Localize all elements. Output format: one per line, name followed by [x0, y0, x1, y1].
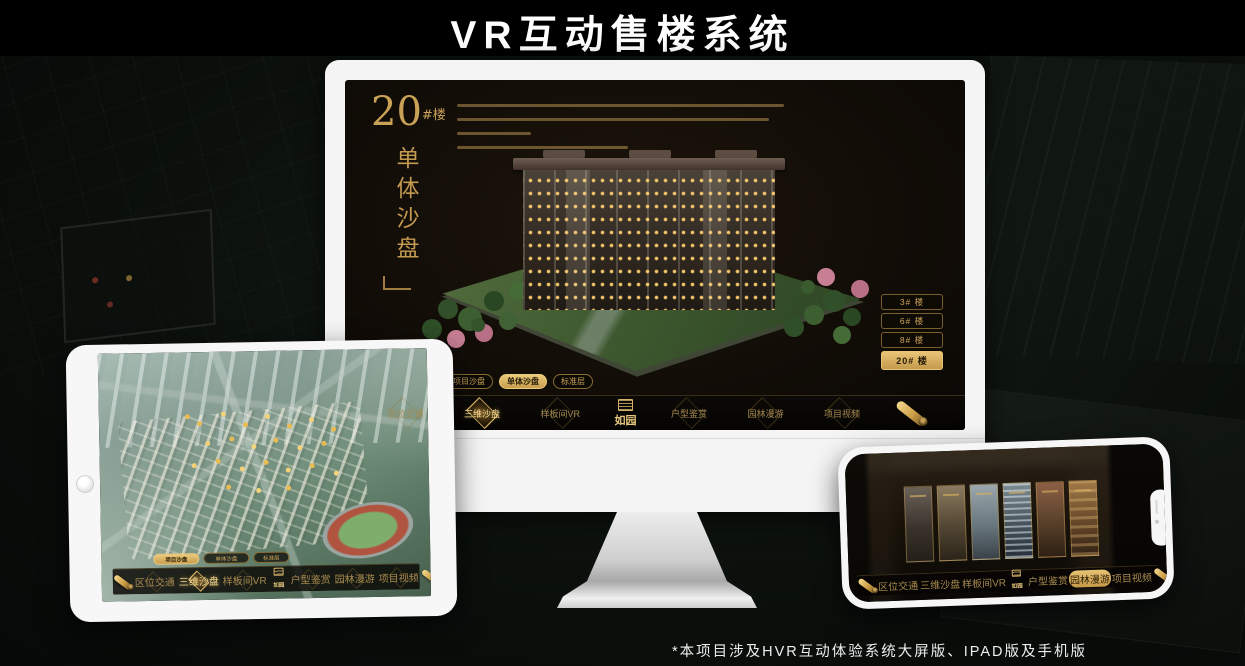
- floor-button-8[interactable]: 8# 楼: [881, 332, 943, 348]
- scroll-handle-icon[interactable]: [895, 399, 927, 427]
- roof-gable: [715, 150, 757, 158]
- building-number-unit: #楼: [422, 104, 446, 123]
- building-3d-render[interactable]: [405, 130, 885, 392]
- monitor-nav-item-project-video[interactable]: 项目视频: [818, 405, 866, 422]
- gallery-panel[interactable]: [1003, 482, 1034, 559]
- residential-building: [523, 158, 775, 310]
- phone-nav-item-floorplan-gallery[interactable]: 户型鉴赏: [1027, 570, 1070, 588]
- subtab-single-sandtable[interactable]: 单体沙盘: [499, 374, 547, 389]
- phone-screen: 区位交通 三维沙盘 样板间VR 如园 户型鉴赏 园林漫游 项目视频: [845, 443, 1168, 602]
- hanging-panel-gallery: [904, 480, 1100, 563]
- tablet-nav-item-3d-sandtable[interactable]: 三维沙盘: [177, 572, 221, 590]
- tablet-nav-item-model-room-vr[interactable]: 样板间VR: [221, 571, 269, 589]
- tablet-nav-item-garden-roam[interactable]: 园林漫游: [332, 569, 376, 587]
- brand-logo-text: 如园: [273, 579, 284, 587]
- background-plaque: [60, 209, 215, 344]
- phone-brand-logo: 如园: [1007, 569, 1028, 593]
- phone-nav-item-location-traffic[interactable]: 区位交通: [877, 576, 920, 594]
- scroll-handle-icon[interactable]: [857, 578, 877, 595]
- gallery-panel[interactable]: [970, 483, 1001, 560]
- scroll-handle-icon[interactable]: [113, 574, 133, 591]
- tablet-device: 项目沙盘 单体沙盘 标准层 区位交通 三维沙盘 样板间VR 如园 户型鉴赏 园林…: [66, 339, 458, 623]
- brand-seal-icon: [618, 399, 633, 411]
- speaker-slit-icon: [1155, 500, 1157, 514]
- brand-logo-text: 如园: [614, 412, 636, 428]
- trees-foliage: [801, 280, 815, 294]
- tablet-brand-logo: 如园: [268, 567, 288, 591]
- page-title: VR互动售楼系统: [0, 4, 1245, 60]
- tablet-nav-item-floorplan-gallery[interactable]: 户型鉴赏: [288, 570, 332, 588]
- monitor-nav-item-floorplan-gallery[interactable]: 户型鉴赏: [665, 405, 713, 422]
- building-facade-lit-windows: [523, 170, 775, 310]
- phone-device: 区位交通 三维沙盘 样板间VR 如园 户型鉴赏 园林漫游 项目视频: [837, 436, 1174, 609]
- brand-logo-text: 如园: [1011, 580, 1022, 589]
- monitor-nav-item-garden-roam[interactable]: 园林漫游: [741, 405, 789, 422]
- phone-nav-item-garden-roam[interactable]: 园林漫游: [1069, 569, 1112, 587]
- description-line: [457, 118, 769, 121]
- roof-gable: [543, 150, 585, 158]
- background-city-texture: [980, 55, 1245, 365]
- brand-seal-icon: [273, 567, 283, 575]
- building-number: 20: [371, 92, 422, 132]
- monitor-stand: [557, 512, 757, 608]
- tablet-nav-item-project-video[interactable]: 项目视频: [376, 568, 420, 586]
- floor-button-20[interactable]: 20# 楼: [881, 351, 943, 370]
- gallery-panel[interactable]: [1069, 480, 1100, 557]
- tablet-main-nav: 区位交通 三维沙盘 样板间VR 如园 户型鉴赏 园林漫游 项目视频: [113, 563, 420, 594]
- footnote-text: *本项目涉及HVR互动体验系统大屏版、IPAD版及手机版: [672, 640, 1087, 661]
- tablet-subtab-single-sandtable[interactable]: 单体沙盘: [203, 552, 249, 564]
- gallery-panel[interactable]: [904, 486, 935, 563]
- monitor-nav-item-3d-sandtable[interactable]: 三维沙盘: [458, 405, 506, 422]
- tablet-subtab-standard-floor[interactable]: 标准层: [253, 552, 289, 564]
- description-line: [457, 104, 784, 107]
- phone-nav-item-3d-sandtable[interactable]: 三维沙盘: [919, 574, 962, 592]
- monitor-nav-item-location-traffic[interactable]: 区位交通: [381, 405, 429, 422]
- building-hero-label: 20#楼: [371, 92, 446, 132]
- floor-button-group: 3# 楼 6# 楼 8# 楼 20# 楼: [881, 294, 943, 370]
- tablet-screen: 项目沙盘 单体沙盘 标准层 区位交通 三维沙盘 样板间VR 如园 户型鉴赏 园林…: [98, 348, 431, 602]
- floor-button-6[interactable]: 6# 楼: [881, 313, 943, 329]
- building-roof: [513, 158, 785, 170]
- monitor-brand-logo: 如园: [614, 399, 636, 428]
- tablet-subtab-project-sandtable[interactable]: 项目沙盘: [153, 553, 199, 565]
- phone-nav-item-model-room-vr[interactable]: 样板间VR: [961, 573, 1007, 592]
- gallery-panel[interactable]: [1036, 481, 1067, 558]
- brand-seal-icon: [1012, 569, 1021, 576]
- subtab-standard-floor[interactable]: 标准层: [553, 374, 593, 389]
- phone-nav-item-project-video[interactable]: 项目视频: [1111, 567, 1154, 585]
- trees-foliage: [471, 318, 485, 332]
- phone-notch: [1150, 489, 1167, 545]
- promo-canvas: VR互动售楼系统 20#楼 单体沙盘: [0, 0, 1245, 666]
- tablet-nav-item-location-traffic[interactable]: 区位交通: [133, 572, 177, 590]
- monitor-nav-item-model-room-vr[interactable]: 样板间VR: [534, 405, 586, 422]
- camera-dot-icon: [1155, 520, 1159, 524]
- tablet-home-button[interactable]: [76, 474, 94, 492]
- gallery-panel[interactable]: [937, 484, 968, 561]
- sandtable-subtabs: 项目沙盘 单体沙盘 标准层: [445, 374, 593, 389]
- floor-button-3[interactable]: 3# 楼: [881, 294, 943, 310]
- roof-gable: [629, 150, 671, 158]
